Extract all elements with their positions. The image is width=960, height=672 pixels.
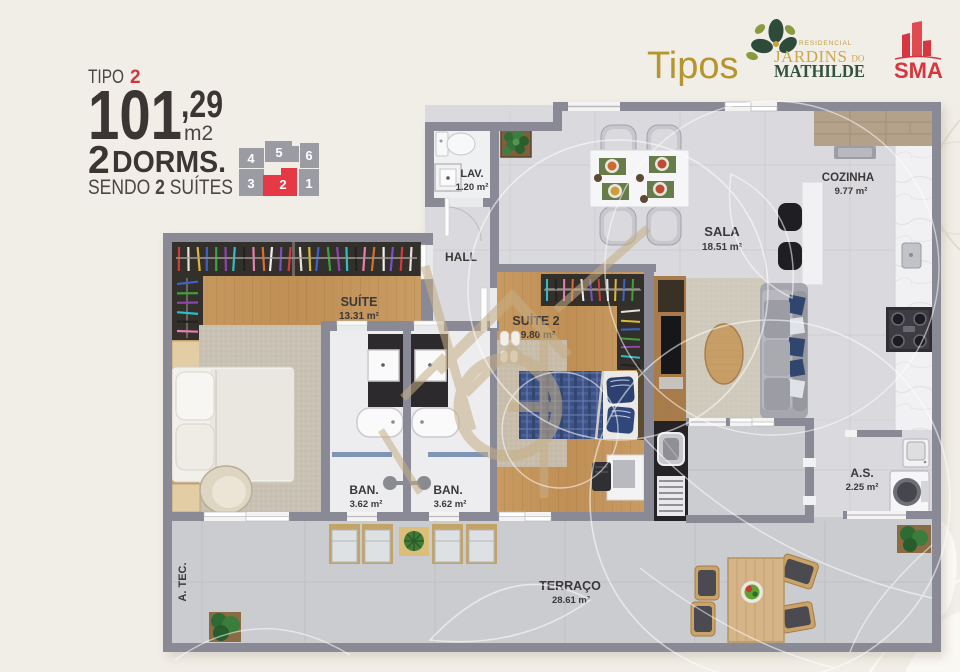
svg-text:9.77 m²: 9.77 m² [835,186,868,197]
svg-text:BAN.: BAN. [433,483,462,497]
svg-text:RESIDENCIAL: RESIDENCIAL [799,40,852,47]
svg-text:6: 6 [305,148,312,163]
svg-text:Tipos: Tipos [647,45,739,87]
svg-text:A.S.: A.S. [850,466,873,480]
svg-text:3.62 m²: 3.62 m² [350,499,383,510]
svg-text:SMA: SMA [894,58,943,83]
svg-text:3.62 m²: 3.62 m² [434,499,467,510]
svg-text:SUÍTE: SUÍTE [341,294,378,309]
svg-text:2.25 m²: 2.25 m² [846,482,879,493]
svg-text:3: 3 [247,176,254,191]
svg-text:LAV.: LAV. [460,168,483,180]
svg-text:m2: m2 [184,122,213,145]
svg-text:1.20 m²: 1.20 m² [456,182,489,193]
svg-text:DORMS.: DORMS. [112,144,226,179]
svg-text:2: 2 [279,177,286,192]
svg-text:SENDO 2 SUÍTES: SENDO 2 SUÍTES [88,174,233,199]
svg-text:13.31 m²: 13.31 m² [339,311,380,322]
svg-text:,29: ,29 [181,84,223,126]
svg-text:4: 4 [247,151,255,166]
svg-text:18.51 m²: 18.51 m² [702,242,743,253]
svg-text:BAN.: BAN. [349,483,378,497]
svg-text:MATHILDE: MATHILDE [774,61,865,81]
svg-text:COZINHA: COZINHA [822,172,874,184]
svg-text:5: 5 [275,145,282,160]
svg-text:A. TEC.: A. TEC. [177,562,189,601]
svg-text:1: 1 [305,176,312,191]
